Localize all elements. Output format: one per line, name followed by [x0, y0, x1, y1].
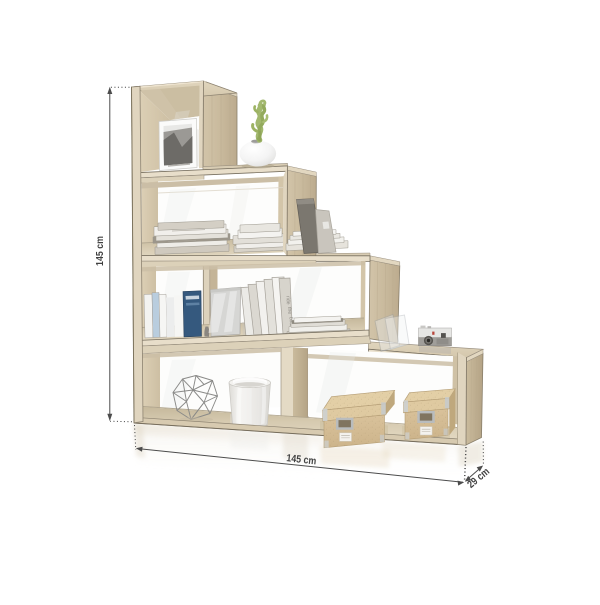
svg-text:ride: ride: [285, 296, 291, 305]
svg-text:145 cm: 145 cm: [94, 236, 106, 266]
svg-text:the: the: [286, 307, 292, 315]
